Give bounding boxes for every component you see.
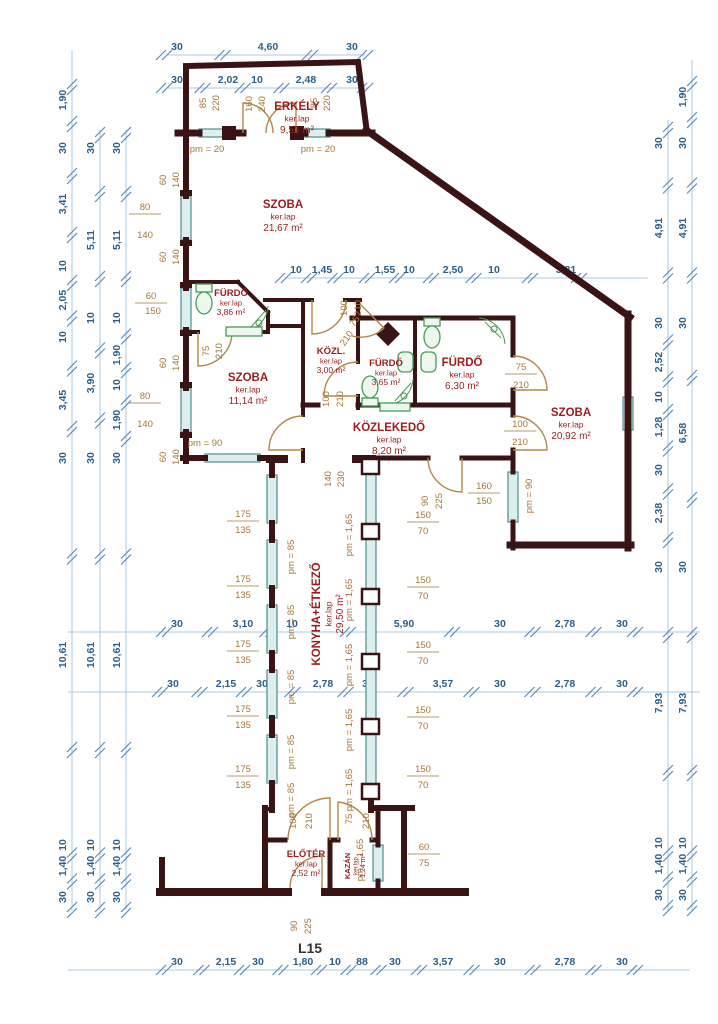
column-box	[362, 654, 379, 669]
dimension-label: 2,78	[555, 618, 576, 630]
dimension-label: 2,78	[555, 678, 576, 690]
dimension-label: 30	[171, 956, 183, 968]
dimension-label: 30	[653, 317, 665, 329]
dimension-label: 1,55	[375, 264, 396, 276]
door-arc	[269, 416, 303, 450]
minor-dimension-label: pm = 85	[286, 605, 297, 640]
minor-dimension-label: 150	[415, 705, 431, 716]
window	[205, 454, 260, 462]
room-name: SZOBA	[551, 407, 591, 419]
dimension-chain: 1,90304,91306,58307,93101,4030	[677, 60, 697, 916]
dimension-label: 30	[653, 137, 665, 149]
room-area: 6,30 m²	[445, 381, 480, 392]
minor-dimension-label: 140	[137, 230, 153, 241]
dimension-label: 1,90	[57, 90, 69, 111]
dimension-label: 3,10	[233, 618, 254, 630]
minor-dimension-label: 60	[158, 252, 169, 263]
dimension-label: 1,45	[312, 264, 333, 276]
dimension-label: 30	[677, 317, 689, 329]
minor-dimension-label: 70	[418, 721, 429, 732]
minor-dimension-label: pm = 1,65	[344, 709, 355, 752]
minor-dimension-label: 60	[146, 291, 157, 302]
minor-dimension-label: 140	[171, 172, 182, 188]
dimension-label: 5,11	[85, 230, 97, 250]
room-finish: ker.lap	[235, 385, 260, 395]
minor-dimension-label: pm = 85	[286, 540, 297, 575]
minor-dimension-label: pm = 90	[524, 479, 535, 514]
minor-dimension-label: pm = 85	[286, 670, 297, 705]
window-jamb	[180, 282, 192, 288]
dimension-label: 10,61	[85, 642, 97, 668]
drawing-title: L15	[298, 940, 322, 956]
minor-dimension-label: 60	[158, 358, 169, 369]
minor-dimension-label: 210	[512, 437, 528, 448]
dimension-label: 10	[677, 837, 689, 849]
minor-dimension-label: 210	[513, 380, 529, 391]
dimension-label: 30	[111, 891, 123, 903]
column-box	[362, 719, 379, 734]
room-label: SZOBAker.lap20,92 m²	[551, 407, 592, 442]
dimension-label: 3,57	[433, 678, 454, 690]
dimension-label: 2,02	[218, 74, 239, 86]
sink-icon	[421, 352, 436, 372]
minor-dimension-label: 160	[244, 96, 255, 112]
dimension-label: 2,15	[216, 956, 237, 968]
minor-dimension-label: 175	[235, 509, 251, 520]
dimension-label: 10	[343, 264, 355, 276]
dimension-label: 3,90	[85, 373, 97, 394]
minor-dimension-label: 210	[335, 391, 346, 407]
toilet-icon	[196, 284, 212, 292]
dimension-chain: 305,11103,903010,61101,4030	[85, 127, 105, 918]
dimension-label: 10	[57, 331, 69, 343]
minor-dimension-label: pm = 1,65	[344, 769, 355, 812]
dimension-label: 2,78	[555, 956, 576, 968]
window	[267, 735, 277, 783]
minor-dimension-label: 175	[235, 764, 251, 775]
dimension-label: 10	[85, 312, 97, 324]
dimension-label: 10	[57, 260, 69, 272]
dimension-chain: 302,15302,78303,57302,7830	[68, 678, 700, 697]
room-finish: ker.lap	[354, 857, 360, 875]
room-name: FÜRDŐ	[442, 356, 483, 369]
dimension-label: 6,58	[677, 423, 689, 444]
minor-dimension-label: 210	[304, 813, 315, 829]
dimension-label: 10	[111, 839, 123, 851]
dimension-label: 30	[389, 956, 401, 968]
dimension-label: 30	[677, 889, 689, 901]
room-area: 3,00 m²	[317, 365, 346, 375]
minor-dimension-label: 60	[158, 175, 169, 186]
minor-dimension-label: 220	[211, 95, 222, 111]
minor-dimension-label: 210	[361, 813, 372, 829]
room-name: SZOBA	[228, 372, 268, 384]
floor-plan-page: 304,6030302,02102,4830101,45101,55102,50…	[0, 0, 718, 1024]
minor-dimension-label: 210	[353, 300, 364, 316]
minor-dimension-label: 70	[418, 591, 429, 602]
minor-dimension-label: 135	[235, 780, 251, 791]
minor-dimension-label: 140	[171, 249, 182, 265]
dimension-label: 10	[329, 956, 341, 968]
dimension-label: 30	[653, 464, 665, 476]
toilet-icon	[362, 398, 378, 406]
room-name: SZOBA	[263, 199, 303, 211]
dimension-label: 1,40	[111, 856, 123, 877]
dimension-label: 3,45	[57, 390, 69, 411]
window-jamb	[180, 330, 192, 336]
dimension-label: 30	[171, 618, 183, 630]
minor-dimension-label: 100	[512, 419, 528, 430]
minor-dimension-label: 150	[415, 764, 431, 775]
window	[267, 540, 277, 588]
dimension-label: 30	[167, 678, 179, 690]
room-area: 11,14 m²	[229, 396, 268, 407]
plan-code-label: L15	[298, 940, 322, 956]
window-jamb	[180, 190, 192, 196]
room-label: KÖZLEKEDŐker.lap8,20 m²	[353, 421, 425, 457]
dimension-label: 2,78	[313, 678, 334, 690]
minor-dimension-label: 100	[288, 813, 299, 829]
dimension-label: 5,90	[394, 618, 415, 630]
dimension-label: 1,40	[653, 854, 665, 875]
dimension-label: 10	[290, 264, 302, 276]
dimension-label: 30	[111, 142, 123, 154]
window-jamb	[180, 240, 192, 246]
dimension-label: 30	[346, 74, 358, 86]
dimension-label: 10	[111, 312, 123, 324]
window	[267, 605, 277, 653]
dimension-label: 5,11	[111, 230, 123, 250]
window	[181, 388, 191, 432]
room-name: KAZÁN	[343, 853, 352, 879]
minor-dimension-label: 175	[235, 574, 251, 585]
minor-dimension-label: 160	[476, 481, 492, 492]
minor-dimension-label: 175	[235, 704, 251, 715]
dimension-label: 2,15	[216, 678, 237, 690]
minor-dimension-label: 75	[344, 814, 355, 825]
room-finish: ker.lap	[270, 212, 295, 222]
minor-dimension-label: pm = 1,65	[344, 514, 355, 557]
minor-dimension-label: 80	[140, 391, 151, 402]
room-area: 3,65 m²	[372, 377, 401, 387]
dimension-label: 2,52	[653, 352, 665, 373]
minor-dimension-label: pm = 1,65	[344, 644, 355, 687]
dimension-label: 1,40	[85, 856, 97, 877]
minor-dimension-label: 225	[303, 918, 314, 934]
window	[366, 669, 376, 719]
dimension-label: 10	[251, 74, 263, 86]
minor-dimension-label: 140	[171, 355, 182, 371]
toilet-icon	[424, 318, 440, 326]
minor-dimension-label: pm = 20	[190, 144, 225, 155]
window	[181, 196, 191, 240]
minor-dimension-label: 150	[145, 306, 161, 317]
room-label: KÖZL.ker.lap3,00 m²	[317, 346, 346, 375]
toilet-icon	[424, 326, 440, 348]
room-label: SZOBAker.lap21,67 m²	[263, 199, 304, 234]
dimension-chain: 304,6030	[156, 41, 373, 60]
minor-dimension-label: 225	[434, 493, 445, 509]
room-label: KONYHA+ÉTKEZŐker.lap29,50 m²	[310, 562, 346, 665]
minor-dimension-label: 135	[235, 590, 251, 601]
dimension-label: 4,60	[258, 41, 279, 53]
dimension-label: 30	[616, 678, 628, 690]
window	[366, 539, 376, 589]
dimension-label: 30	[171, 74, 183, 86]
dimension-label: 10	[111, 379, 123, 391]
dimension-label: 3,57	[433, 956, 454, 968]
toilet-icon	[196, 292, 212, 314]
dimension-label: 30	[653, 889, 665, 901]
wall-pier	[266, 455, 288, 463]
dimension-label: 30	[57, 142, 69, 154]
minor-dimension-label: 135	[235, 720, 251, 731]
dimension-chain: 1,90303,41102,05103,453010,61101,4030	[57, 50, 77, 918]
window-jamb	[180, 382, 192, 388]
room-finish: ker.lap	[449, 370, 474, 380]
dimension-chain: 303,10105,90302,7830	[68, 618, 700, 637]
room-label: ELŐTÉRker.lap2,52 m²	[287, 848, 326, 878]
minor-dimension-label: 150	[415, 640, 431, 651]
room-area: 8,20 m²	[372, 446, 407, 457]
room-label: FÜRDŐker.lap3,65 m²	[369, 357, 403, 387]
minor-dimension-label: 100	[321, 391, 332, 407]
dimension-label: 10	[57, 839, 69, 851]
minor-dimension-label: 75	[516, 362, 527, 373]
room-area: 2,52 m²	[292, 868, 321, 878]
minor-dimension-label: 85	[198, 98, 209, 109]
minor-dimension-label: 135	[235, 525, 251, 536]
room-area: 9,56 m²	[280, 125, 315, 136]
room-area: 20,92 m²	[551, 431, 591, 442]
dimension-label: 1,90	[111, 345, 123, 366]
dimension-label: 10	[488, 264, 500, 276]
walls-layer	[160, 62, 631, 892]
window	[366, 604, 376, 654]
dimension-label: 2,05	[57, 290, 69, 311]
dimension-label: 10,61	[111, 642, 123, 668]
dimension-label: 30	[494, 618, 506, 630]
window	[508, 472, 518, 522]
dimension-label: 4,91	[677, 218, 689, 239]
minor-dimension-label: 75	[419, 858, 430, 869]
minor-dimension-label: 70	[418, 656, 429, 667]
window	[267, 670, 277, 718]
minor-dimension-label: 100	[339, 300, 350, 316]
room-finish: ker.lap	[284, 114, 309, 124]
dimension-label: 30	[616, 956, 628, 968]
room-finish: ker.lap	[558, 420, 583, 430]
dimension-label: 1,28	[653, 417, 665, 438]
dimension-label: 30	[653, 561, 665, 573]
dimension-label: 30	[85, 452, 97, 464]
door-arc	[428, 458, 462, 492]
dimension-chain: 101,45101,55102,50103,81	[275, 264, 648, 283]
dimension-label: 30	[171, 41, 183, 53]
window	[366, 734, 376, 784]
minor-dimension-label: 140	[137, 419, 153, 430]
dimension-label: 2,50	[443, 264, 464, 276]
dimension-label: 30	[57, 452, 69, 464]
dimension-label: 30	[85, 891, 97, 903]
dimension-label: 30	[346, 41, 358, 53]
dimension-label: 30	[494, 678, 506, 690]
dimension-label: 1,40	[57, 856, 69, 877]
room-finish: ker.lap	[376, 435, 401, 445]
minor-dimension-label: 90	[420, 496, 431, 507]
column-box	[362, 589, 379, 604]
dimension-label: 2,48	[296, 74, 317, 86]
dimension-label: 7,93	[677, 693, 689, 714]
minor-dimension-label: 70	[418, 780, 429, 791]
room-name: KÖZLEKEDŐ	[353, 421, 425, 434]
window	[181, 288, 191, 330]
dimension-label: 10	[653, 391, 665, 403]
room-area: 1,24 m²	[360, 853, 367, 877]
radiator-icon	[226, 327, 262, 336]
floor-plan-drawing: 304,6030302,02102,4830101,45101,55102,50…	[0, 0, 718, 1024]
dimension-label: 1,90	[111, 410, 123, 431]
minor-dimension-label: 220	[322, 95, 333, 111]
column-box	[362, 784, 379, 799]
room-area: 29,50 m²	[335, 594, 346, 634]
minor-dimension-label: 150	[415, 575, 431, 586]
dimension-label: 30	[57, 891, 69, 903]
dimension-label: 30	[111, 452, 123, 464]
minor-dimension-label: 80	[140, 202, 151, 213]
dimension-label: 30	[252, 956, 264, 968]
room-label: ERKÉLYker.lap9,56 m²	[274, 100, 320, 136]
room-name: ELŐTÉR	[287, 848, 326, 860]
room-area: 3,86 m²	[217, 307, 246, 317]
room-name: FÜRDŐ	[369, 357, 403, 369]
dimension-label: 30	[494, 956, 506, 968]
minor-dimension-label: 150	[415, 510, 431, 521]
room-label: SZOBAker.lap11,14 m²	[228, 372, 268, 407]
minor-dimension-label: 175	[235, 639, 251, 650]
minor-dimension-label: 240	[257, 96, 268, 112]
minor-dimension-label: 150	[476, 496, 492, 507]
dimension-label: 1,90	[677, 87, 689, 108]
minor-dimension-label: pm = 90	[188, 438, 223, 449]
minor-dimension-label: 230	[336, 471, 347, 487]
dimension-label: 30	[85, 142, 97, 154]
dimension-label: 1,80	[293, 956, 314, 968]
minor-dimension-label: pm = 85	[286, 735, 297, 770]
room-name: ERKÉLY	[274, 100, 320, 113]
dimension-label: 1,40	[677, 854, 689, 875]
window	[373, 845, 383, 881]
window	[267, 475, 277, 523]
room-name: FÜRDŐ	[214, 287, 248, 299]
dimension-label: 30	[677, 561, 689, 573]
room-name: KONYHA+ÉTKEZŐ	[310, 562, 323, 665]
wall-pier	[222, 126, 236, 140]
minor-dimension-label: 140	[323, 471, 334, 487]
dimension-label: 30	[677, 137, 689, 149]
dimension-label: 30	[616, 618, 628, 630]
dimension-chain: 304,91302,52101,28302,38307,93101,4030	[653, 120, 673, 916]
minor-dimension-label: 60	[158, 452, 169, 463]
dimension-label: 10	[403, 264, 415, 276]
dimension-label: 4,91	[653, 218, 665, 239]
minor-dimension-label: 90	[289, 921, 300, 932]
diagonal-pier	[376, 322, 400, 346]
minor-dimension-label: 75	[201, 346, 212, 357]
room-finish: ker.lap	[324, 601, 334, 626]
dimension-label: 10,61	[57, 642, 69, 668]
room-label: FÜRDŐker.lap6,30 m²	[442, 356, 483, 392]
dimension-label: 30	[256, 678, 268, 690]
dimension-label: 3,41	[57, 194, 69, 215]
column-box	[362, 459, 379, 474]
minor-dimension-label: 140	[171, 449, 182, 465]
dimension-label: 7,93	[653, 693, 665, 714]
room-area: 21,67 m²	[263, 223, 303, 234]
dimension-chain: 302,15301,801088303,57302,7830	[68, 956, 690, 975]
dimension-label: 10	[653, 837, 665, 849]
column-box	[362, 524, 379, 539]
minor-dimension-label: 70	[418, 526, 429, 537]
dimension-chain: 305,11101,90101,903010,61101,4030	[111, 127, 131, 918]
minor-dimension-label: pm = 20	[301, 144, 336, 155]
window	[366, 474, 376, 524]
dimension-label: 10	[85, 839, 97, 851]
dimension-label: 2,38	[653, 503, 665, 524]
minor-dimension-label: pm = 85	[286, 783, 297, 818]
radiator-icon	[380, 403, 410, 411]
room-label: FÜRDŐker.lap3,86 m²	[214, 287, 248, 317]
room-name: KÖZL.	[317, 346, 346, 357]
minor-dimension-label: 60	[419, 842, 430, 853]
minor-dimension-label: 210	[214, 343, 225, 359]
minor-dimension-label: 135	[235, 655, 251, 666]
dimension-label: 88	[356, 956, 368, 968]
